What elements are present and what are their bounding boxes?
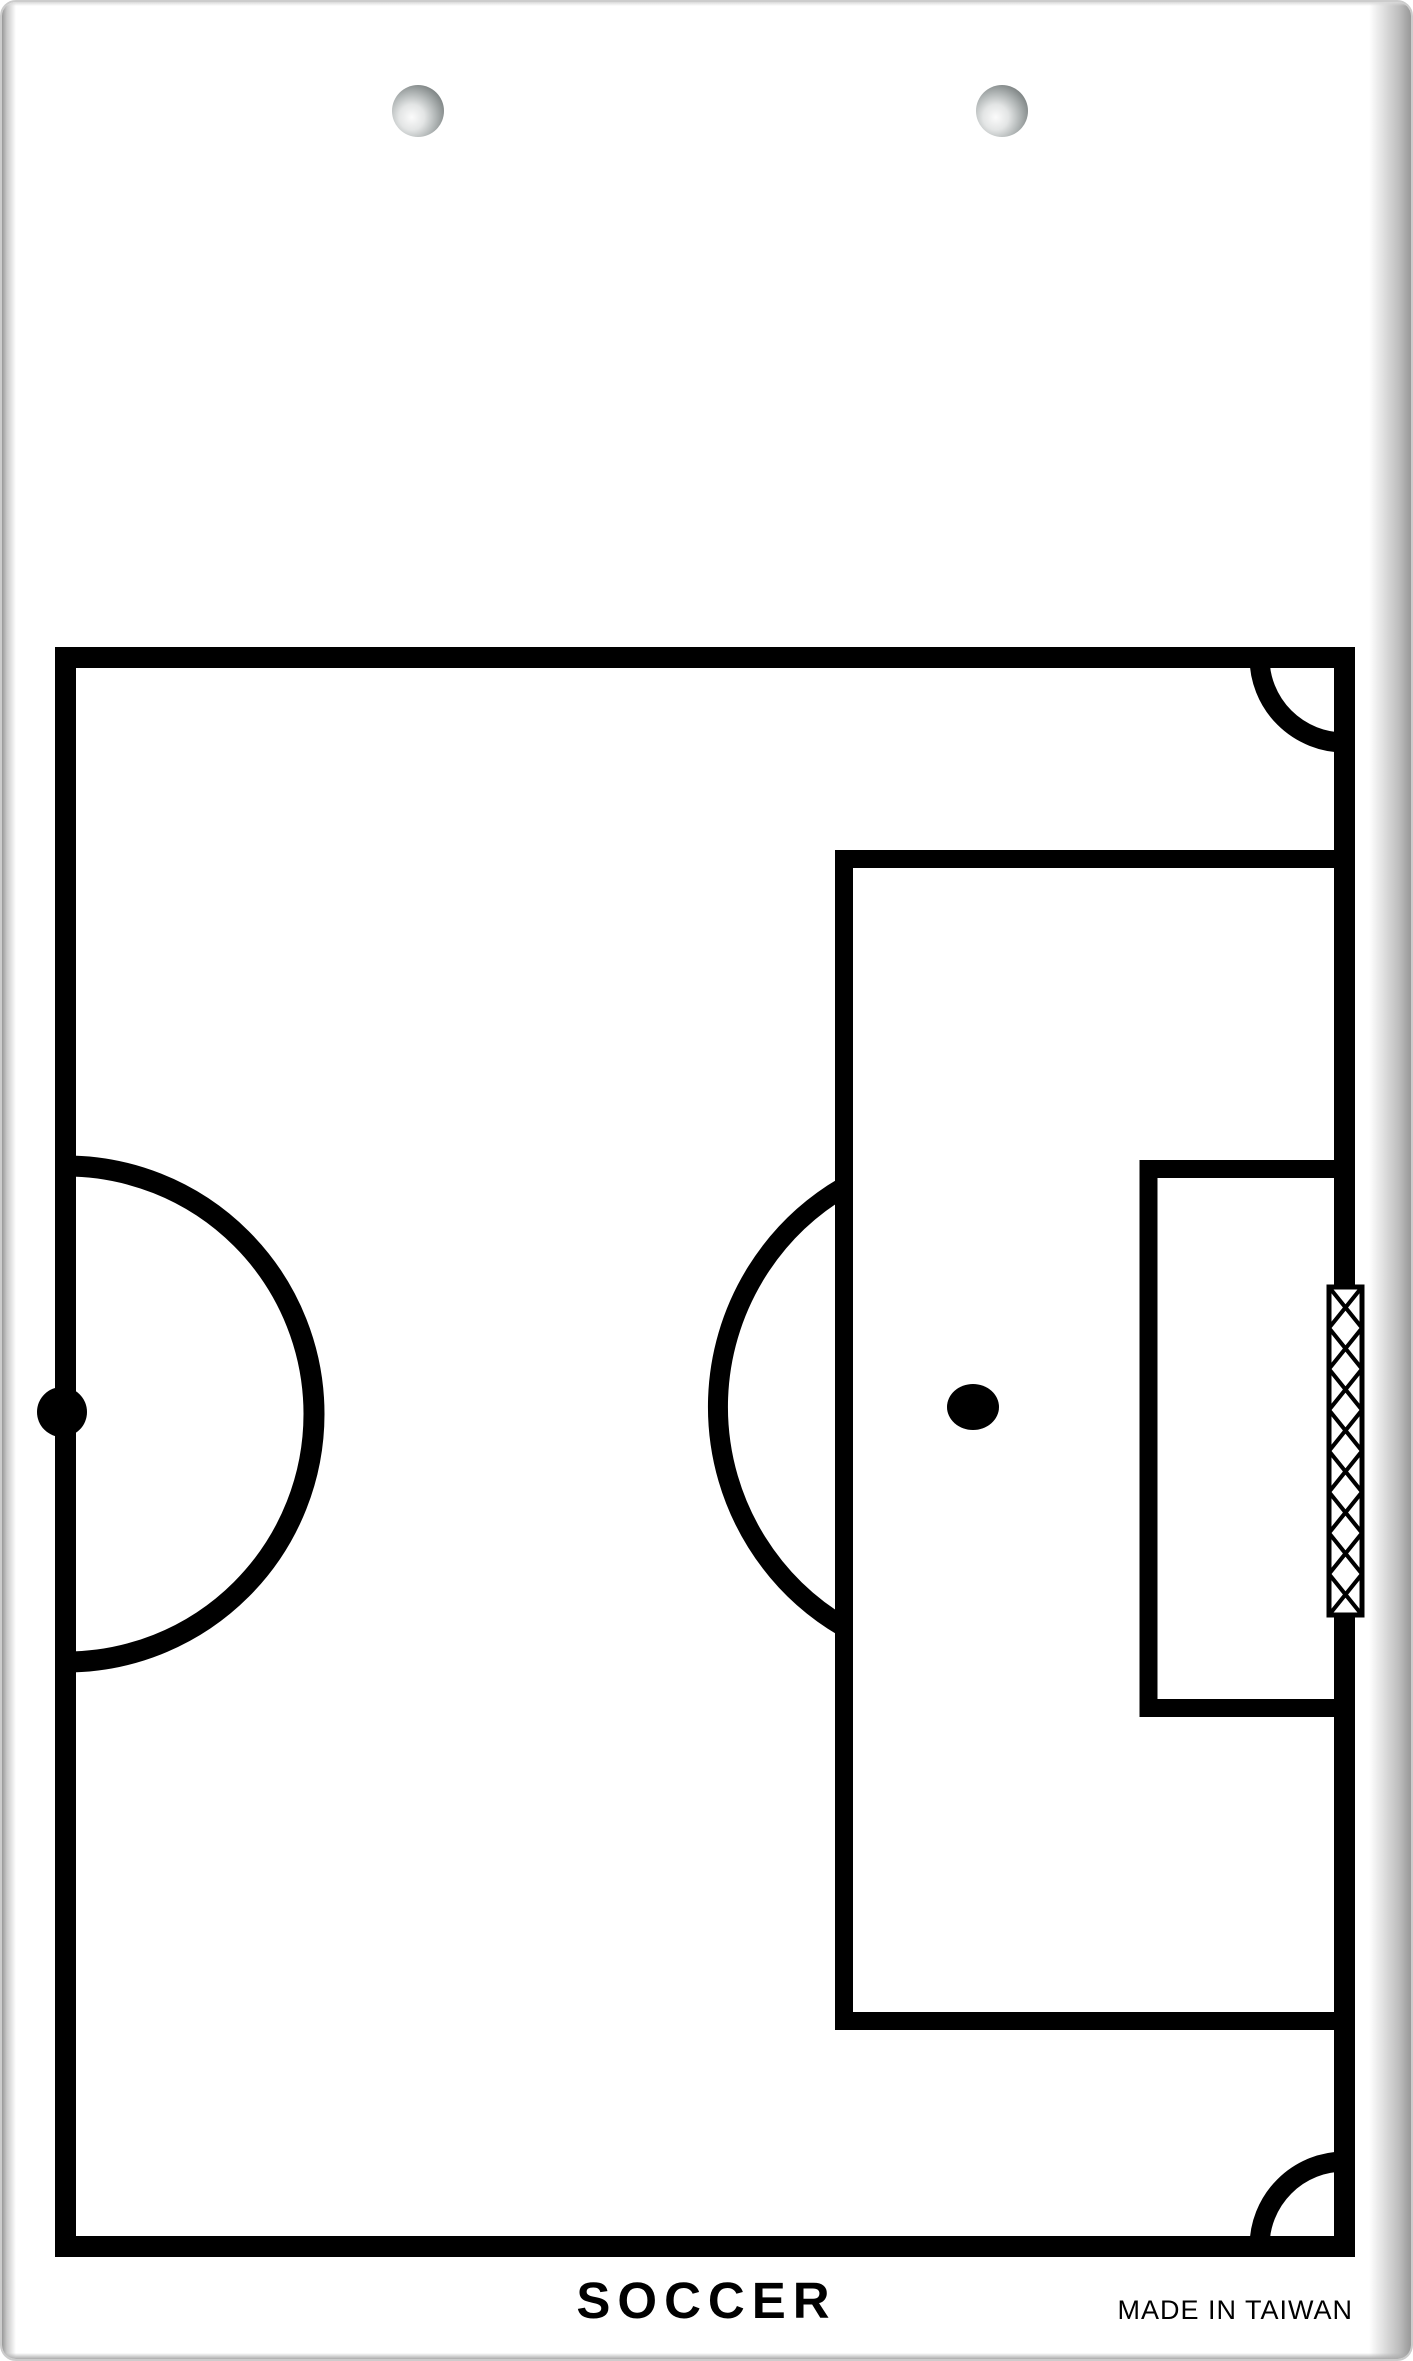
goal-net-hatch: [1329, 1287, 1362, 1615]
goal-area: [1149, 1169, 1346, 1708]
made-in-label: MADE IN TAIWAN: [1117, 2297, 1353, 2324]
center-spot: [37, 1387, 87, 1437]
penalty-spot: [947, 1384, 999, 1430]
coaching-board: SOCCER MADE IN TAIWAN: [0, 0, 1413, 2361]
penalty-arc: [718, 1187, 844, 1627]
screenshot-stage: SOCCER MADE IN TAIWAN: [0, 0, 1413, 2361]
center-circle-half: [66, 1166, 314, 1662]
penalty-area: [844, 859, 1345, 2021]
corner-arc-bottom-right: [1260, 2162, 1345, 2247]
soccer-half-field-diagram: [2, 2, 1413, 2361]
corner-arc-top-right: [1260, 658, 1345, 743]
